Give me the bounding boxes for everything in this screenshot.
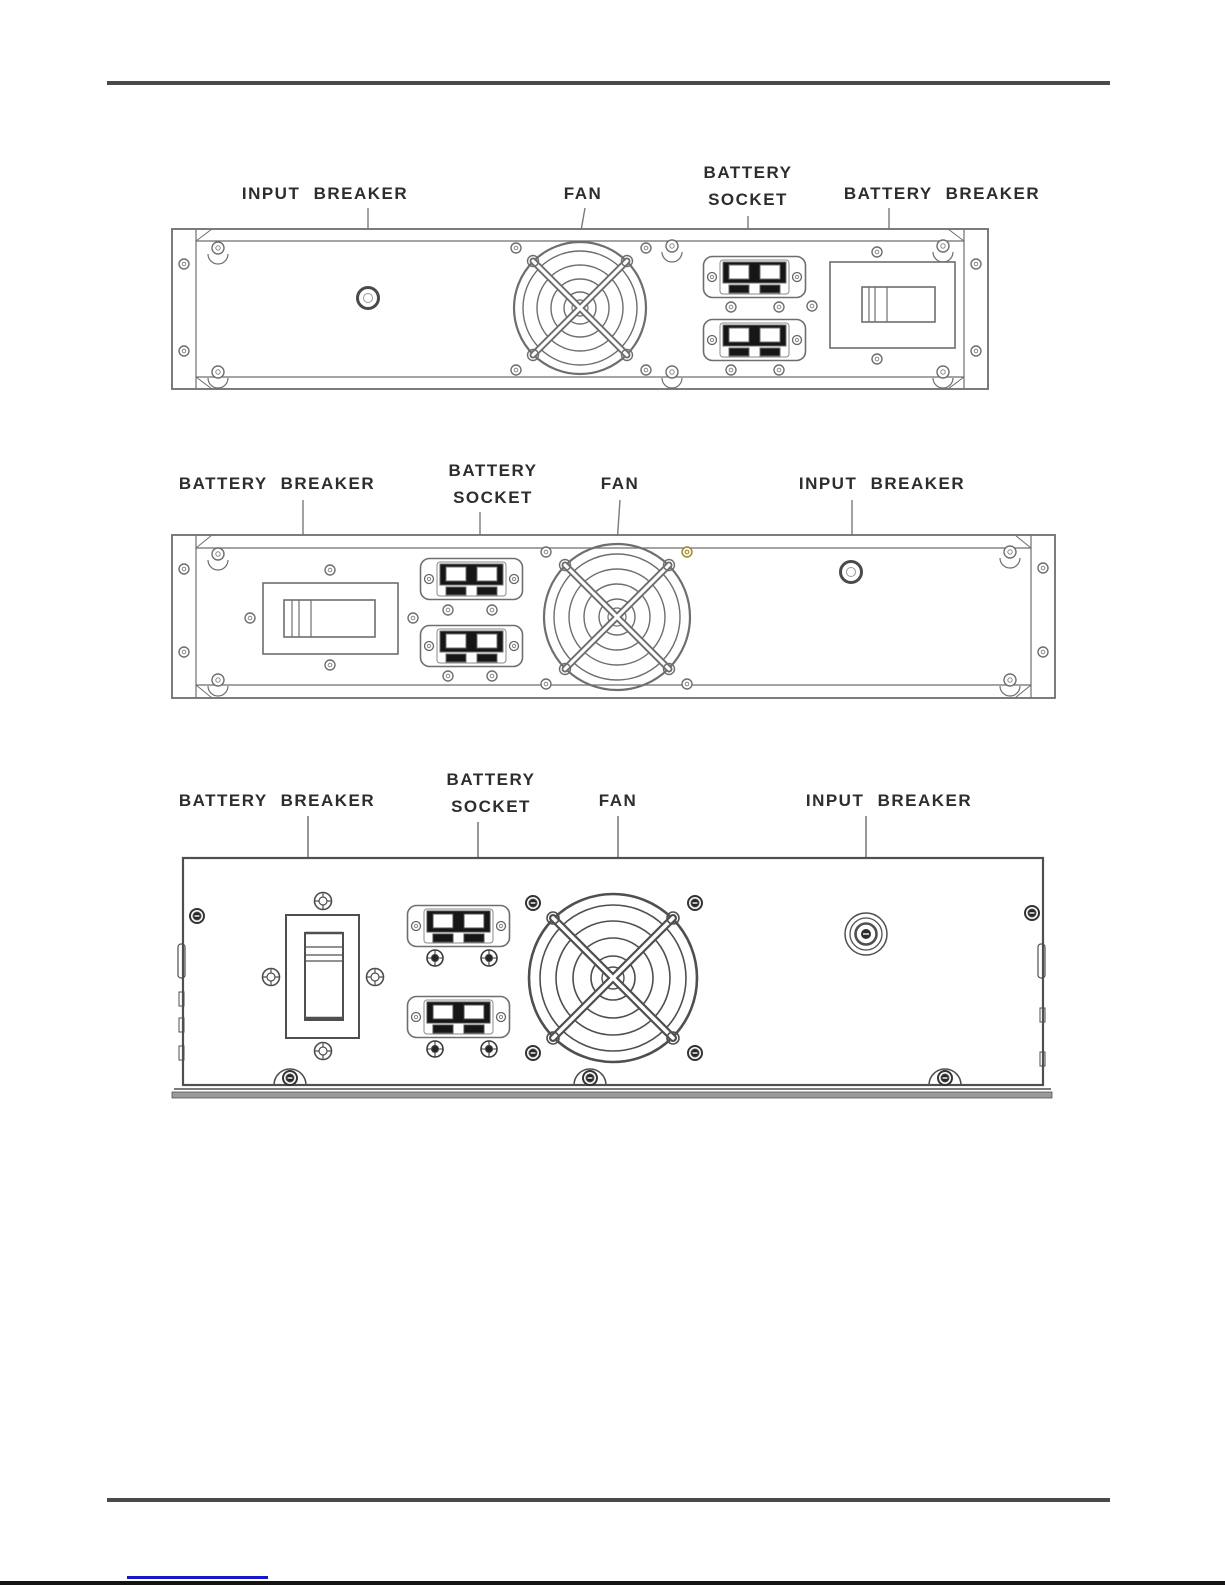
battery-socket-1a bbox=[704, 257, 806, 298]
footer-rule bbox=[107, 1498, 1110, 1502]
gold-screw bbox=[682, 547, 692, 557]
battery-socket-2a bbox=[421, 559, 523, 600]
label-battery-breaker-2: BATTERY BREAKER bbox=[167, 474, 387, 494]
fan-grille-2 bbox=[544, 544, 690, 690]
label-fan-3: FAN bbox=[568, 791, 668, 811]
label-input-breaker-1: INPUT BREAKER bbox=[215, 184, 435, 204]
battery-socket-3b bbox=[408, 997, 510, 1038]
chassis-outline-3 bbox=[172, 858, 1052, 1098]
chassis-outline-1 bbox=[172, 229, 988, 389]
leader-lines-1 bbox=[368, 208, 889, 288]
label-battery-socket-1: BATTERY SOCKET bbox=[696, 159, 800, 213]
leader-lines-3 bbox=[308, 816, 866, 908]
chassis-outline-2 bbox=[172, 535, 1055, 698]
fan-grille-3 bbox=[529, 894, 697, 1062]
label-battery-socket-3-line1: BATTERY bbox=[439, 766, 543, 793]
label-battery-socket-3: BATTERY SOCKET bbox=[439, 766, 543, 820]
input-breaker-1 bbox=[358, 288, 379, 309]
battery-breaker-3 bbox=[286, 915, 359, 1038]
battery-breaker-1 bbox=[830, 262, 955, 348]
battery-socket-3a bbox=[408, 906, 510, 947]
panel-screws-3 bbox=[190, 893, 1039, 1061]
rear-panel-diagram-1 bbox=[172, 208, 988, 389]
label-battery-socket-1-line1: BATTERY bbox=[696, 159, 800, 186]
input-breaker-2 bbox=[841, 562, 862, 583]
label-battery-socket-2: BATTERY SOCKET bbox=[441, 457, 545, 511]
label-fan-2: FAN bbox=[570, 474, 670, 494]
label-fan-1: FAN bbox=[533, 184, 633, 204]
footer-link-underline[interactable] bbox=[127, 1572, 268, 1579]
rear-panel-diagram-2 bbox=[172, 500, 1055, 698]
label-battery-socket-3-line2: SOCKET bbox=[439, 793, 543, 820]
page-bottom-edge bbox=[0, 1581, 1225, 1585]
battery-socket-1b bbox=[704, 320, 806, 361]
leader-lines-2 bbox=[303, 500, 852, 592]
header-rule bbox=[107, 81, 1110, 85]
label-battery-breaker-3: BATTERY BREAKER bbox=[167, 791, 387, 811]
label-battery-socket-1-line2: SOCKET bbox=[696, 186, 800, 213]
label-input-breaker-2: INPUT BREAKER bbox=[772, 474, 992, 494]
rear-panel-diagram-3 bbox=[172, 816, 1052, 1098]
battery-breaker-2 bbox=[263, 583, 398, 654]
battery-socket-2b bbox=[421, 626, 523, 667]
input-breaker-3 bbox=[845, 913, 887, 955]
label-battery-socket-2-line1: BATTERY bbox=[441, 457, 545, 484]
label-battery-breaker-1: BATTERY BREAKER bbox=[832, 184, 1052, 204]
panel-screws-1 bbox=[179, 240, 981, 388]
panel-screws-2 bbox=[179, 546, 1048, 696]
document-page: INPUT BREAKER FAN BATTERY SOCKET BATTERY… bbox=[0, 0, 1225, 1585]
label-battery-socket-2-line2: SOCKET bbox=[441, 484, 545, 511]
fan-grille-1 bbox=[514, 242, 646, 374]
label-input-breaker-3: INPUT BREAKER bbox=[779, 791, 999, 811]
